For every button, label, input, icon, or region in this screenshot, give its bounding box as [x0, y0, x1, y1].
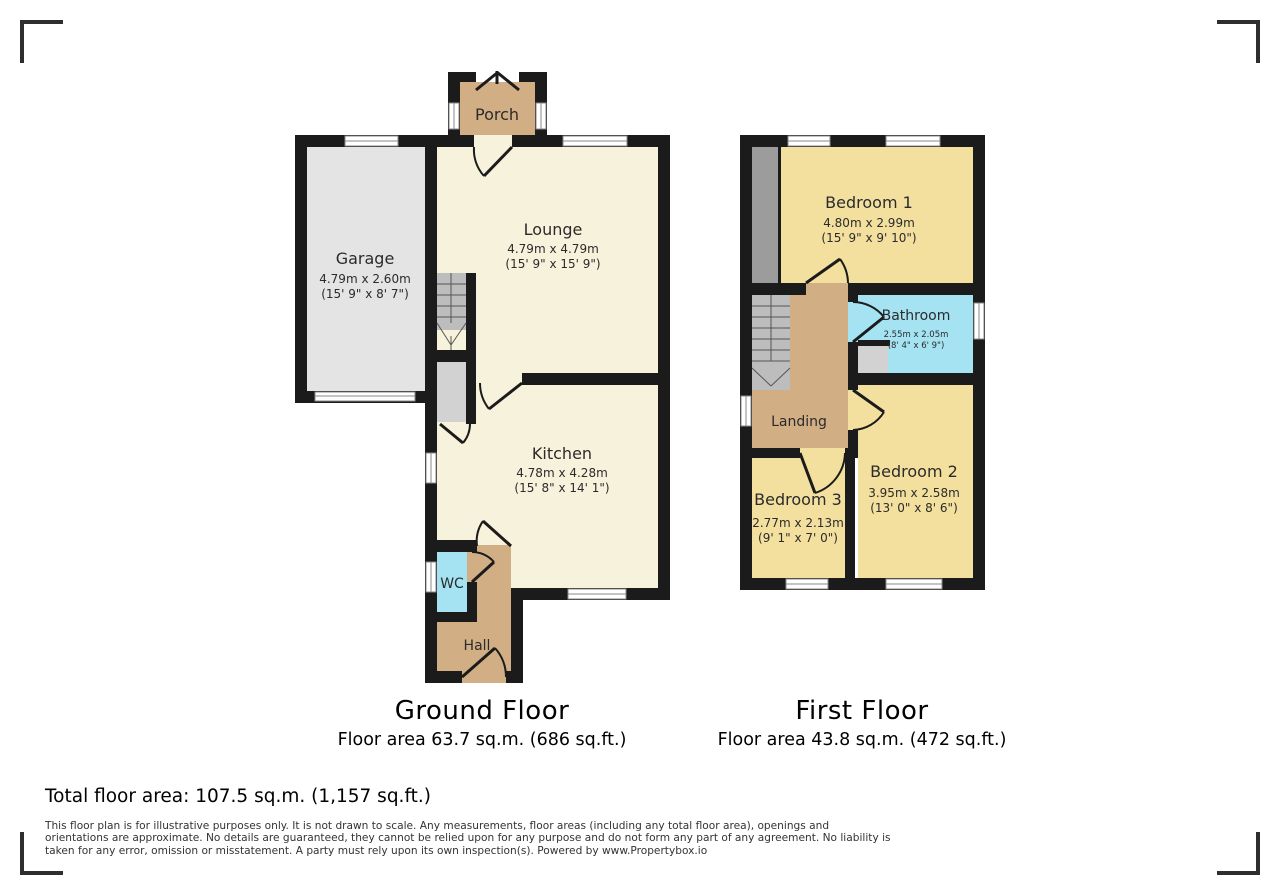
wall-segment: [425, 391, 437, 683]
door-gap: [848, 390, 858, 430]
lounge-dims-metric: 4.79m x 4.79m: [507, 242, 599, 256]
kitchen-label: Kitchen: [532, 444, 592, 463]
first-floor-title: First Floor: [672, 696, 1052, 726]
wall-segment: [658, 135, 670, 600]
cropmark-top-right: [1217, 22, 1258, 63]
disclaimer-text: This floor plan is for illustrative purp…: [45, 820, 893, 857]
wall-segment: [752, 283, 973, 295]
bedroom1-dims-imperial: (15' 9" x 9' 10"): [821, 231, 916, 245]
ground-floor-area: Floor area 63.7 sq.m. (686 sq.ft.): [262, 730, 702, 750]
bathroom-label: Bathroom: [882, 308, 951, 324]
door-gap: [800, 448, 845, 458]
bedroom3-dims-metric: 2.77m x 2.13m: [752, 516, 844, 530]
wall-segment: [425, 135, 437, 403]
garage-dims-metric: 4.79m x 2.60m: [319, 272, 411, 286]
first-floor-caption: First Floor Floor area 43.8 sq.m. (472 s…: [672, 696, 1052, 750]
ground-floor-plan: Porch Garage 4.79m x 2.60m (15' 9" x 8' …: [295, 71, 670, 683]
porch-wall: [519, 72, 547, 82]
total-floor-area: Total floor area: 107.5 sq.m. (1,157 sq.…: [45, 786, 431, 807]
cropmark-top-left: [22, 22, 63, 63]
bathroom-dims-imperial: (8' 4" x 6' 9"): [888, 341, 945, 351]
landing-label: Landing: [771, 414, 827, 430]
garage-label: Garage: [336, 249, 395, 268]
bedroom2-dims-metric: 3.95m x 2.58m: [868, 486, 960, 500]
hall-label: Hall: [464, 638, 491, 654]
bedroom3-label: Bedroom 3: [754, 490, 842, 509]
wall-segment: [740, 135, 985, 147]
ground-floor-title: Ground Floor: [262, 696, 702, 726]
bedroom1-label: Bedroom 1: [825, 193, 913, 212]
door-gap: [848, 302, 858, 342]
bedroom3-dims-imperial: (9' 1" x 7' 0"): [758, 531, 838, 545]
kitchen-dims-metric: 4.78m x 4.28m: [516, 466, 608, 480]
floorplan-drawing: Porch Garage 4.79m x 2.60m (15' 9" x 8' …: [0, 0, 1280, 895]
lounge-label: Lounge: [524, 220, 583, 239]
wall-segment: [433, 540, 477, 552]
wall-segment: [511, 588, 523, 683]
floorplan-page: Porch Garage 4.79m x 2.60m (15' 9" x 8' …: [0, 0, 1280, 895]
wall-segment: [466, 362, 476, 424]
ground-floor-caption: Ground Floor Floor area 63.7 sq.m. (686 …: [262, 696, 702, 750]
wall-segment: [522, 373, 658, 385]
door-gap: [806, 283, 848, 295]
wall-segment: [433, 612, 477, 622]
wall-segment: [848, 373, 985, 385]
airing-cupboard: [858, 346, 888, 373]
bedroom1-dims-metric: 4.80m x 2.99m: [823, 216, 915, 230]
wc-label: WC: [440, 576, 464, 592]
wall-segment: [845, 448, 855, 578]
porch-label: Porch: [475, 105, 519, 124]
wall-segment: [740, 135, 752, 590]
bedroom2-dims-imperial: (13' 0" x 8' 6"): [870, 501, 958, 515]
wall-segment: [740, 578, 985, 590]
bedroom1-room: [752, 147, 973, 283]
wall-segment: [973, 135, 985, 590]
kitchen-dims-imperial: (15' 8" x 14' 1"): [514, 481, 609, 495]
wardrobe: [752, 147, 778, 283]
bedroom2-label: Bedroom 2: [870, 462, 958, 481]
cropmark-bottom-right: [1217, 832, 1258, 873]
bedroom2-room: [858, 385, 973, 578]
bathroom-dims-metric: 2.55m x 2.05m: [884, 330, 949, 340]
wall-segment: [466, 273, 476, 362]
lounge-dims-imperial: (15' 9" x 15' 9"): [505, 257, 600, 271]
first-floor-plan: Bedroom 1 4.80m x 2.99m (15' 9" x 9' 10"…: [740, 135, 985, 590]
first-floor-area: Floor area 43.8 sq.m. (472 sq.ft.): [672, 730, 1052, 750]
wall-segment: [295, 135, 307, 403]
wardrobe-edge: [778, 147, 781, 283]
gf-cupboard-fill: [437, 362, 466, 422]
garage-room: [307, 147, 425, 391]
porch-wall: [448, 72, 476, 82]
door-gap: [474, 135, 512, 147]
garage-dims-imperial: (15' 9" x 8' 7"): [321, 287, 409, 301]
